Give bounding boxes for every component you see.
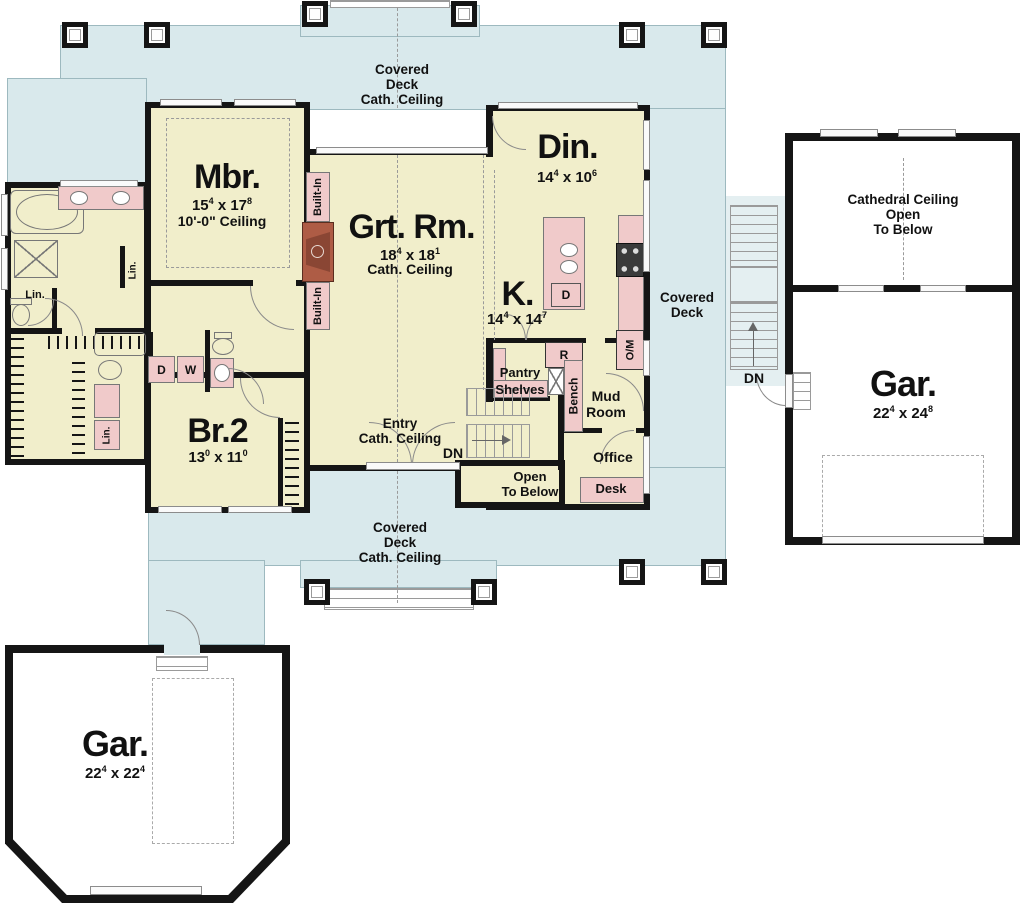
mbr-south-wall: [150, 280, 253, 286]
deck-post: [701, 22, 727, 48]
mbr-dimensions: 154 x 178: [162, 196, 282, 214]
right-building-divider-wall: [785, 285, 1020, 292]
right-building-window: [898, 129, 956, 137]
great-room-ceiling-note: Cath. Ceiling: [330, 262, 490, 278]
dryer: D: [148, 356, 175, 383]
entry-label: EntryCath. Ceiling: [340, 416, 460, 446]
deck-stairs-dn-label: DN: [738, 371, 770, 387]
br2-window: [228, 506, 292, 513]
br2-name: Br.2: [150, 414, 285, 448]
closet-rod: [72, 362, 85, 458]
left-garage-name: Gar.: [55, 726, 175, 762]
deck-post: [619, 22, 645, 48]
pantry-label: Pantry: [490, 366, 550, 381]
deck-post: [62, 22, 88, 48]
br2-dimensions: 130 x 110: [158, 448, 278, 466]
interior-stairs-lower: [466, 424, 530, 458]
bath2-toilet-tank: [214, 332, 232, 339]
right-garage-door: [822, 536, 984, 544]
office-label: Office: [580, 450, 646, 466]
deck-post: [471, 579, 497, 605]
deck-stairs-upper: [730, 205, 778, 267]
deck-top-steps: [330, 0, 450, 8]
deck-post: [144, 22, 170, 48]
deck-stairs-arrowhead: [748, 322, 758, 331]
right-garage-name: Gar.: [843, 366, 963, 402]
open-to-below-label: OpenTo Below: [488, 470, 572, 499]
deck-stairs-landing: [730, 267, 778, 302]
deck-stairs-direction-line: [753, 330, 754, 366]
left-garage-dimensions: 224 x 224: [55, 764, 175, 782]
linen-cabinet: Lin.: [94, 420, 120, 450]
br2-closet-rod: [285, 422, 299, 508]
oven-microwave: O/M: [616, 330, 644, 370]
deck-post: [304, 579, 330, 605]
deck-stairs-lower: [730, 302, 778, 370]
linen-closet-label: Lin.: [123, 250, 143, 290]
fireplace-flue: [311, 245, 324, 258]
dining-side-window: [643, 180, 650, 272]
mbr-window: [160, 99, 222, 106]
right-building-side-door-gap: [785, 374, 793, 408]
dining-side-window: [643, 120, 650, 170]
floor-plan: Lin. D W Built-In Built-In D O/M R Bench: [0, 0, 1024, 903]
mbr-name: Mbr.: [157, 160, 297, 194]
deck-top-left-extension: [7, 78, 147, 188]
washer: W: [177, 356, 204, 383]
desk-label: Desk: [578, 482, 644, 497]
great-room-name: Grt. Rm.: [324, 210, 499, 244]
left-wing-window: [1, 248, 8, 290]
deck-right-label: CoveredDeck: [652, 290, 722, 320]
chase: [548, 368, 564, 395]
mbr-window: [234, 99, 296, 106]
range: [616, 243, 644, 277]
kitchen-counter: [618, 215, 644, 343]
right-garage-parking-outline: [822, 455, 984, 537]
mudroom-label: MudRoom: [580, 389, 632, 420]
entry-door-sill: [366, 462, 460, 470]
great-room-window: [316, 147, 488, 154]
deck-bottom-steps: [324, 588, 474, 610]
deck-post: [451, 1, 477, 27]
linen-label: Lin.: [20, 289, 50, 301]
left-garage-door: [90, 886, 202, 895]
right-building-divider-opening: [920, 285, 966, 292]
kitchen-name: K.: [470, 277, 565, 311]
deck-top-label: CoveredDeckCath. Ceiling: [340, 62, 464, 107]
hall-sink: [98, 360, 122, 380]
walkway-entry-steps: [156, 656, 208, 671]
stairs-direction-line: [472, 440, 504, 441]
walkway-door-gap: [164, 644, 200, 655]
dining-window: [498, 102, 638, 109]
linen-label: Lin.: [102, 426, 113, 444]
mbr-ceiling-note: 10'-0" Ceiling: [152, 214, 292, 230]
shelves-label: Shelves: [490, 383, 550, 398]
right-building-divider-opening: [838, 285, 884, 292]
mudroom-window: [643, 340, 650, 376]
right-garage-dimensions: 224 x 248: [843, 404, 963, 422]
built-in-cabinet: Built-In: [306, 282, 330, 330]
vanity-sink: [112, 191, 130, 205]
dining-dimensions: 144 x 106: [507, 168, 627, 186]
deck-post: [302, 1, 328, 27]
mud-office-wall: [636, 428, 650, 433]
deck-bottom-label: CoveredDeckCath. Ceiling: [338, 520, 462, 565]
cathedral-ceiling-label: Cathedral CeilingOpenTo Below: [830, 192, 976, 237]
right-building-window: [820, 129, 878, 137]
masterbath-window: [60, 180, 138, 187]
dining-name: Din.: [500, 130, 635, 164]
island-sink: [560, 243, 578, 257]
right-building-landing-steps: [793, 372, 811, 410]
deck-post: [701, 559, 727, 585]
interior-stairs-dn-label: DN: [438, 446, 468, 462]
left-wing-window: [1, 194, 8, 236]
hall-tub: [94, 332, 146, 356]
vanity-sink: [70, 191, 88, 205]
br2-window: [158, 506, 222, 513]
deck-post: [619, 559, 645, 585]
stairs-direction-arrowhead: [502, 435, 511, 445]
closet-rod: [10, 338, 24, 458]
island-sink: [560, 260, 578, 274]
master-shower: [14, 240, 58, 278]
kitchen-dimensions: 144 x 147: [457, 310, 577, 328]
hall-vanity: [94, 384, 120, 418]
bath2-toilet: [212, 338, 234, 355]
